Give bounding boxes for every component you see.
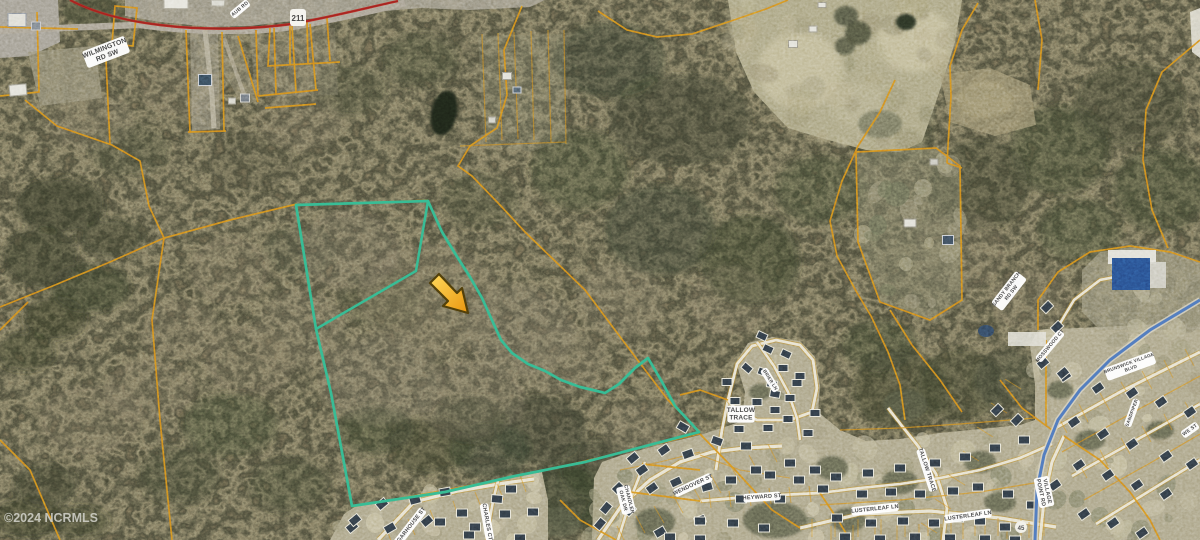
svg-text:211: 211 (292, 14, 305, 23)
svg-text:TALLOW: TALLOW (727, 407, 756, 414)
svg-text:TRACE: TRACE (729, 414, 753, 421)
svg-text:©2024 NCRMLS: ©2024 NCRMLS (4, 511, 98, 525)
svg-text:45: 45 (1018, 526, 1025, 532)
